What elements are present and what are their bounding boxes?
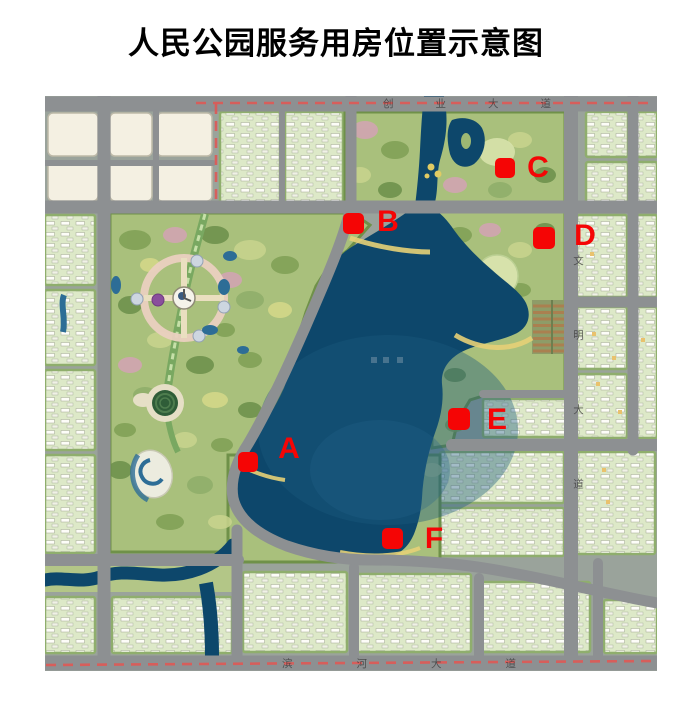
page: 人民公园服务用房位置示意图 [0,0,700,707]
south-canal [206,583,212,656]
marker-F-label: F [425,524,443,554]
page-title: 人民公园服务用房位置示意图 [0,18,686,63]
marker-D-label: D [574,221,596,251]
marker-C-label: C [527,153,549,183]
marker-B-square [343,213,364,234]
road-label-top: 创业大道 [383,97,593,110]
marker-F-square [382,528,403,549]
road-label-right: 文明大道 [572,254,584,553]
marker-D-square [533,227,555,249]
marker-C-square [495,158,515,178]
lake-name-faint-marks [371,357,403,363]
marker-B-label: B [377,207,399,237]
purple-garden-dot [152,294,164,306]
marker-E-label: E [487,405,507,435]
park-map: 创业大道 滨河大道 文明大道 ABCDEF [45,96,657,671]
stream-west [63,295,64,332]
park-map-graphic: 创业大道 滨河大道 文明大道 [45,96,657,671]
marker-E-square [448,408,470,430]
marker-A-label: A [278,434,300,464]
marker-A-square [238,452,258,472]
road-label-bottom: 滨河大道 [282,657,580,670]
